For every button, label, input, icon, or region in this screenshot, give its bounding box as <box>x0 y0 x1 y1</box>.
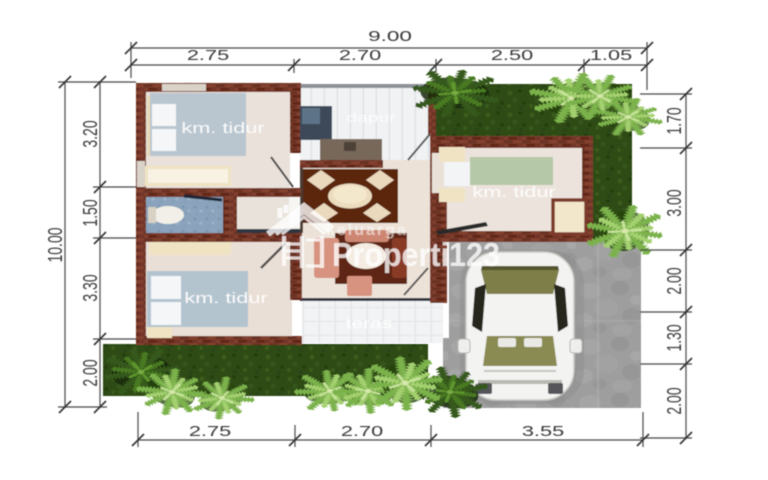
svg-text:dapur: dapur <box>346 110 396 125</box>
svg-text:2.50: 2.50 <box>491 46 533 63</box>
svg-text:3.00: 3.00 <box>662 189 685 216</box>
svg-text:9.00: 9.00 <box>368 28 412 44</box>
svg-text:3.20: 3.20 <box>78 120 101 147</box>
svg-text:2.75: 2.75 <box>189 422 231 439</box>
svg-text:km. tidur: km. tidur <box>184 290 267 306</box>
svg-text:1.05: 1.05 <box>590 46 632 63</box>
svg-text:10.00: 10.00 <box>43 227 66 262</box>
svg-text:2.70: 2.70 <box>339 46 381 63</box>
svg-text:3.30: 3.30 <box>78 274 101 301</box>
svg-text:1.50: 1.50 <box>78 199 101 226</box>
svg-text:1.30: 1.30 <box>662 324 685 351</box>
svg-text:2.00: 2.00 <box>78 359 101 386</box>
svg-text:km. tidur: km. tidur <box>181 120 264 136</box>
svg-text:2.00: 2.00 <box>662 387 685 414</box>
svg-text:3.55: 3.55 <box>522 422 564 439</box>
svg-text:teras: teras <box>346 315 393 331</box>
svg-text:1.70: 1.70 <box>662 107 685 134</box>
svg-text:2.75: 2.75 <box>187 46 229 63</box>
svg-text:2.70: 2.70 <box>341 422 383 439</box>
svg-text:2.00: 2.00 <box>662 267 685 294</box>
svg-text:km. tidur: km. tidur <box>472 184 555 200</box>
svg-text:Properti123: Properti123 <box>332 236 500 273</box>
